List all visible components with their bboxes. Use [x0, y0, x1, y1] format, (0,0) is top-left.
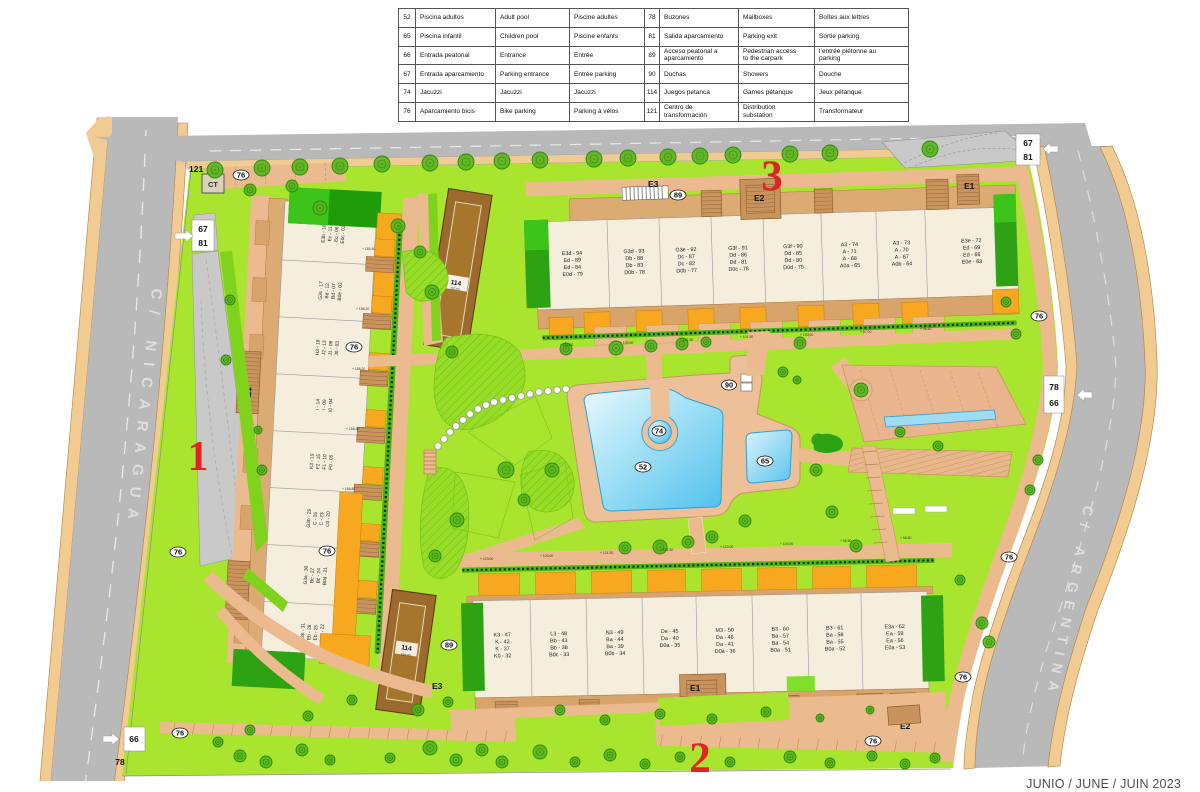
svg-text:E2: E2	[754, 193, 765, 203]
svg-text:76: 76	[237, 170, 245, 179]
svg-text:L3 - 48Bb - 43Bb - 38B0c - 33: L3 - 48Bb - 43Bb - 38B0c - 33	[549, 631, 570, 658]
svg-text:89: 89	[445, 640, 453, 649]
svg-text:+ 100.50: + 100.50	[620, 341, 633, 345]
svg-text:+ 185.40: + 185.40	[362, 247, 375, 251]
svg-text:M3 - 50Da - 46Da - 41D0a - 36: M3 - 50Da - 46Da - 41D0a - 36	[714, 628, 735, 655]
svg-text:1: 1	[188, 434, 209, 480]
svg-text:76: 76	[1035, 311, 1043, 320]
svg-text:G3d - 93Db - 88Db - 83D0b - 78: G3d - 93Db - 88Db - 83D0b - 78	[623, 249, 645, 277]
svg-text:+ 186.80: + 186.80	[342, 487, 355, 491]
svg-text:E3e - 72Ed - 69Ed - 66E0e - 63: E3e - 72Ed - 69Ed - 66E0e - 63	[961, 238, 982, 266]
svg-text:76: 76	[323, 546, 331, 555]
svg-text:+ 101.50: + 101.50	[680, 338, 693, 342]
svg-text:81: 81	[1023, 152, 1033, 162]
svg-text:E3a - 62Ea - 59Ea - 56E0a - 53: E3a - 62Ea - 59Ea - 56E0a - 53	[884, 624, 905, 651]
svg-text:+ 100.00: + 100.00	[800, 333, 813, 337]
svg-text:76: 76	[174, 547, 182, 556]
svg-text:76: 76	[869, 736, 877, 745]
svg-text:De - 45Da - 40D0a - 35: De - 45Da - 40D0a - 35	[659, 629, 680, 649]
svg-text:76: 76	[350, 342, 358, 351]
svg-text:E1: E1	[690, 683, 701, 693]
svg-text:+ 96.50: + 96.50	[920, 327, 932, 331]
svg-text:76: 76	[176, 728, 184, 737]
svg-text:E3: E3	[648, 179, 659, 189]
svg-text:90: 90	[725, 380, 733, 389]
svg-text:+ 98.50: + 98.50	[900, 536, 912, 540]
svg-text:+ 185.20: + 185.20	[352, 367, 365, 371]
svg-text:+ 101.50: + 101.50	[740, 335, 753, 339]
svg-text:N3 - 49Ba - 44Ba - 39B0b - 34: N3 - 49Ba - 44Ba - 39B0b - 34	[604, 630, 625, 657]
svg-text:3: 3	[761, 153, 783, 200]
svg-text:+ 100.00: + 100.00	[560, 343, 573, 347]
svg-text:G3e - 92Dc - 87Dc - 82D0b - 77: G3e - 92Dc - 87Dc - 82D0b - 77	[675, 247, 697, 275]
svg-text:G3f - 91Dd - 86Dd - 81D0c - 76: G3f - 91Dd - 86Dd - 81D0c - 76	[728, 245, 749, 273]
svg-text:78: 78	[115, 757, 125, 767]
svg-text:+ 103.00: + 103.00	[480, 557, 493, 561]
svg-text:E1: E1	[964, 181, 975, 191]
svg-text:81: 81	[198, 238, 208, 248]
svg-text:G3f - 90Dd - 85Dd - 80D0d - 75: G3f - 90Dd - 85Dd - 80D0d - 75	[782, 244, 804, 272]
svg-text:+ 98.50: + 98.50	[840, 539, 852, 543]
svg-text:+ 186.20: + 186.20	[356, 307, 369, 311]
svg-text:67: 67	[198, 224, 208, 234]
svg-text:CT: CT	[208, 180, 218, 189]
svg-text:+ 101.50: + 101.50	[600, 551, 613, 555]
svg-text:66: 66	[129, 734, 139, 744]
svg-text:121: 121	[189, 164, 203, 174]
svg-text:+ 100.00: + 100.00	[780, 542, 793, 546]
svg-text:B3 - 60Ba - 57Ba - 54B0a - 51: B3 - 60Ba - 57Ba - 54B0a - 51	[770, 626, 791, 653]
svg-text:+ 97.00: + 97.00	[860, 330, 872, 334]
svg-text:65: 65	[761, 456, 769, 465]
svg-text:76: 76	[959, 672, 967, 681]
svg-text:2: 2	[689, 735, 711, 782]
svg-text:67: 67	[1023, 138, 1033, 148]
svg-text:+ 186.20: + 186.20	[346, 427, 359, 431]
svg-text:114: 114	[401, 644, 413, 652]
svg-text:E3d - 94Ed - 89Ed - 84E0d - 79: E3d - 94Ed - 89Ed - 84E0d - 79	[562, 251, 583, 279]
svg-text:76: 76	[1005, 552, 1013, 561]
svg-text:78: 78	[1049, 382, 1059, 392]
svg-text:+ 100.00: + 100.00	[720, 545, 733, 549]
svg-text:K3 - 47K - 42K - 37K0 - 32: K3 - 47K - 42K - 37K0 - 32	[493, 632, 511, 659]
svg-text:74: 74	[655, 426, 664, 435]
svg-text:I - 14I - 09I0 - 04: I - 14I - 09I0 - 04	[315, 397, 335, 412]
svg-text:+ 101.50: + 101.50	[660, 548, 673, 552]
svg-text:66: 66	[1049, 398, 1059, 408]
svg-text:B3 - 61Ba - 58Ba - 55B0a - 52: B3 - 61Ba - 58Ba - 55B0a - 52	[824, 625, 845, 652]
svg-text:52: 52	[639, 462, 647, 471]
svg-text:+ 103.00: + 103.00	[540, 554, 553, 558]
svg-text:E3: E3	[432, 681, 443, 691]
svg-text:89: 89	[674, 190, 682, 199]
